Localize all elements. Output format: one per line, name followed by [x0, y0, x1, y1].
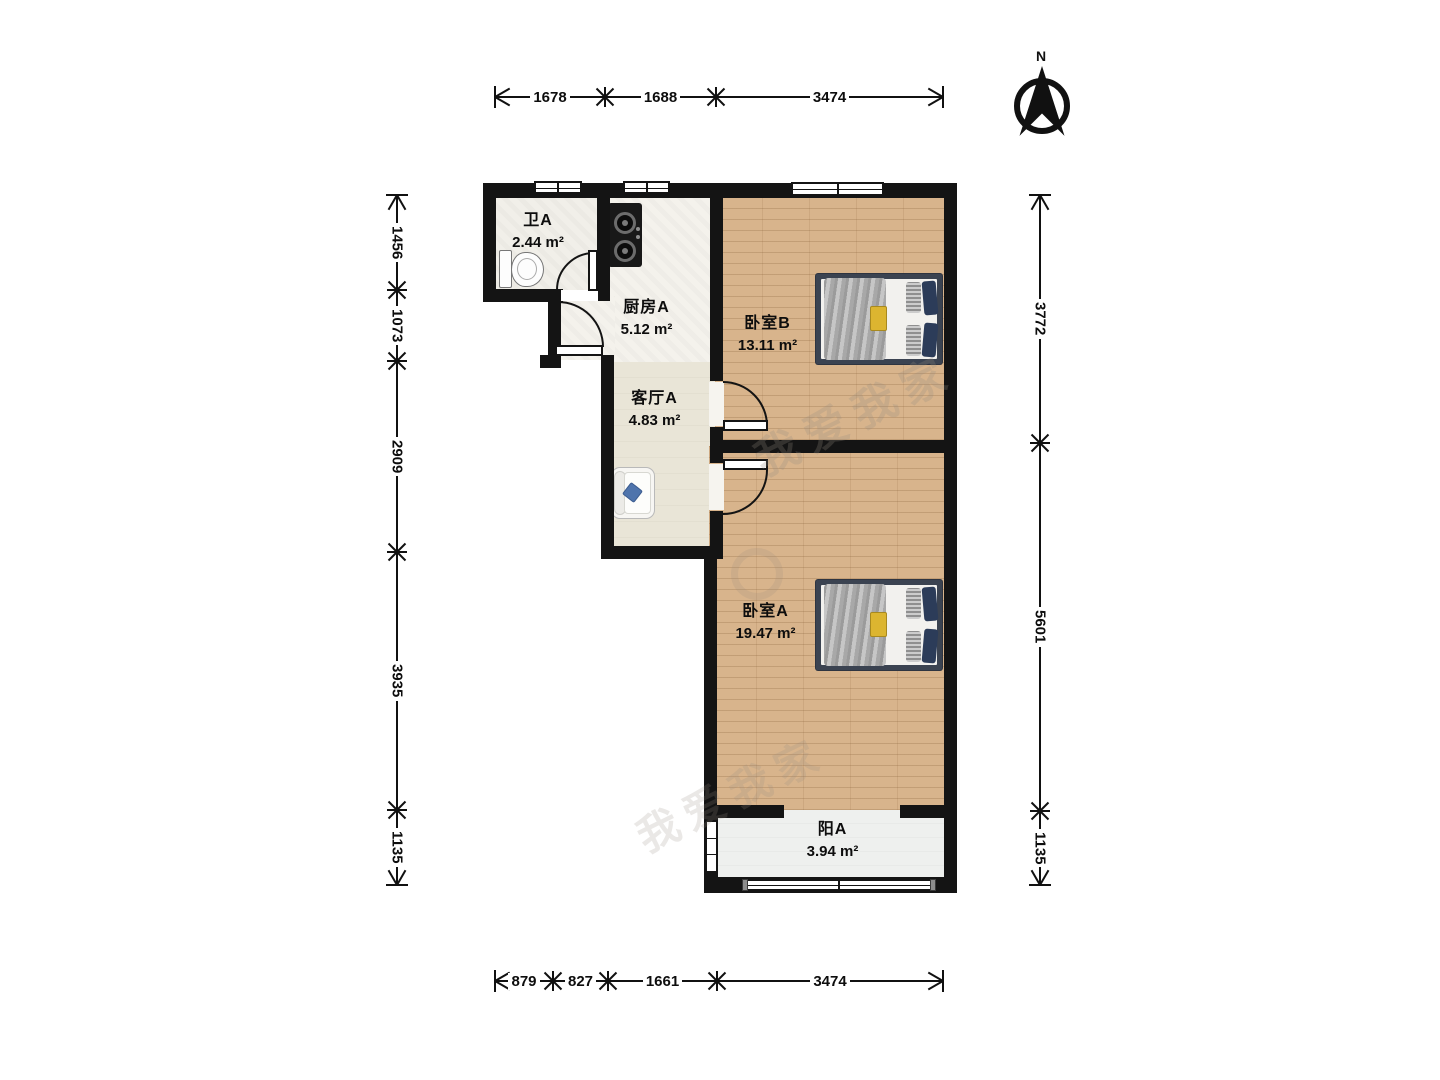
- pillow: [922, 280, 939, 315]
- window: [791, 182, 884, 196]
- watermark-logo-icon: [731, 548, 783, 600]
- wall: [601, 546, 717, 559]
- door-leaf: [723, 420, 768, 431]
- north-label: N: [1036, 48, 1046, 64]
- window: [742, 879, 936, 891]
- room-name: 厨房A: [594, 293, 699, 317]
- room-area: 2.44 m²: [486, 234, 590, 251]
- room-label-bathroom: 卫A 2.44 m²: [486, 206, 590, 251]
- dim-label: 827: [536, 970, 626, 992]
- pillow: [922, 322, 939, 357]
- dim-label: 2909: [386, 412, 408, 502]
- stove-burner: [614, 212, 636, 234]
- floor-plan-canvas: 卫A 2.44 m² 厨房A 5.12 m² 客厅A 4.83 m² 卧室B 1…: [0, 0, 1440, 1080]
- pillow: [906, 282, 921, 313]
- room-area: 19.47 m²: [698, 625, 833, 642]
- door-threshold: [561, 290, 598, 301]
- wall: [900, 805, 944, 818]
- dim-label: 3935: [386, 636, 408, 726]
- stove-knob: [636, 227, 640, 231]
- gas-stove: [608, 203, 642, 267]
- bed: [816, 580, 942, 670]
- dim-label: 3772: [1029, 274, 1051, 364]
- window: [623, 181, 670, 194]
- door-leaf: [588, 250, 598, 291]
- bed-tray: [870, 612, 887, 637]
- room-name: 阳A: [765, 815, 900, 839]
- dim-label: 3474: [785, 86, 875, 108]
- dim-label: 1073: [386, 281, 408, 371]
- toilet-bowl: [511, 252, 544, 287]
- pillow: [906, 631, 921, 662]
- wall: [597, 183, 610, 301]
- door-swing-arc: [723, 470, 768, 515]
- dim-label: 1135: [386, 803, 408, 893]
- room-area: 3.94 m²: [765, 843, 900, 860]
- room-label-balcony: 阳A 3.94 m²: [765, 815, 900, 860]
- pillow: [906, 325, 921, 356]
- wall: [704, 546, 717, 818]
- wall: [540, 355, 560, 368]
- pillow: [922, 628, 939, 663]
- bed-tray: [870, 306, 887, 331]
- window: [705, 820, 718, 873]
- room-area: 13.11 m²: [700, 337, 835, 354]
- sofa: [611, 467, 655, 519]
- dim-label: 5601: [1029, 582, 1051, 672]
- dim-label: 3474: [785, 970, 875, 992]
- dim-label: 1688: [616, 86, 706, 108]
- window: [534, 181, 582, 194]
- room-label-kitchen: 厨房A 5.12 m²: [594, 293, 699, 338]
- room-area: 5.12 m²: [594, 321, 699, 338]
- dim-label: 1456: [386, 198, 408, 288]
- room-name: 卧室B: [700, 309, 835, 333]
- stove-knob: [636, 235, 640, 239]
- wall: [944, 183, 957, 893]
- wall: [710, 440, 944, 453]
- dim-label: 1135: [1029, 803, 1051, 893]
- door-threshold: [709, 382, 724, 426]
- dim-label: 1661: [618, 970, 708, 992]
- door-leaf: [555, 345, 603, 356]
- door-threshold: [709, 464, 724, 510]
- room-label-living: 客厅A 4.83 m²: [602, 384, 707, 429]
- pillow: [922, 586, 939, 621]
- room-name: 客厅A: [602, 384, 707, 408]
- room-name: 卫A: [486, 206, 590, 230]
- room-label-bedroom-a: 卧室A 19.47 m²: [698, 597, 833, 642]
- room-area: 4.83 m²: [602, 412, 707, 429]
- room-name: 卧室A: [698, 597, 833, 621]
- pillow: [906, 588, 921, 619]
- stove-burner: [614, 240, 636, 262]
- room-label-bedroom-b: 卧室B 13.11 m²: [700, 309, 835, 354]
- door-leaf: [723, 459, 768, 470]
- dim-label: 1678: [505, 86, 595, 108]
